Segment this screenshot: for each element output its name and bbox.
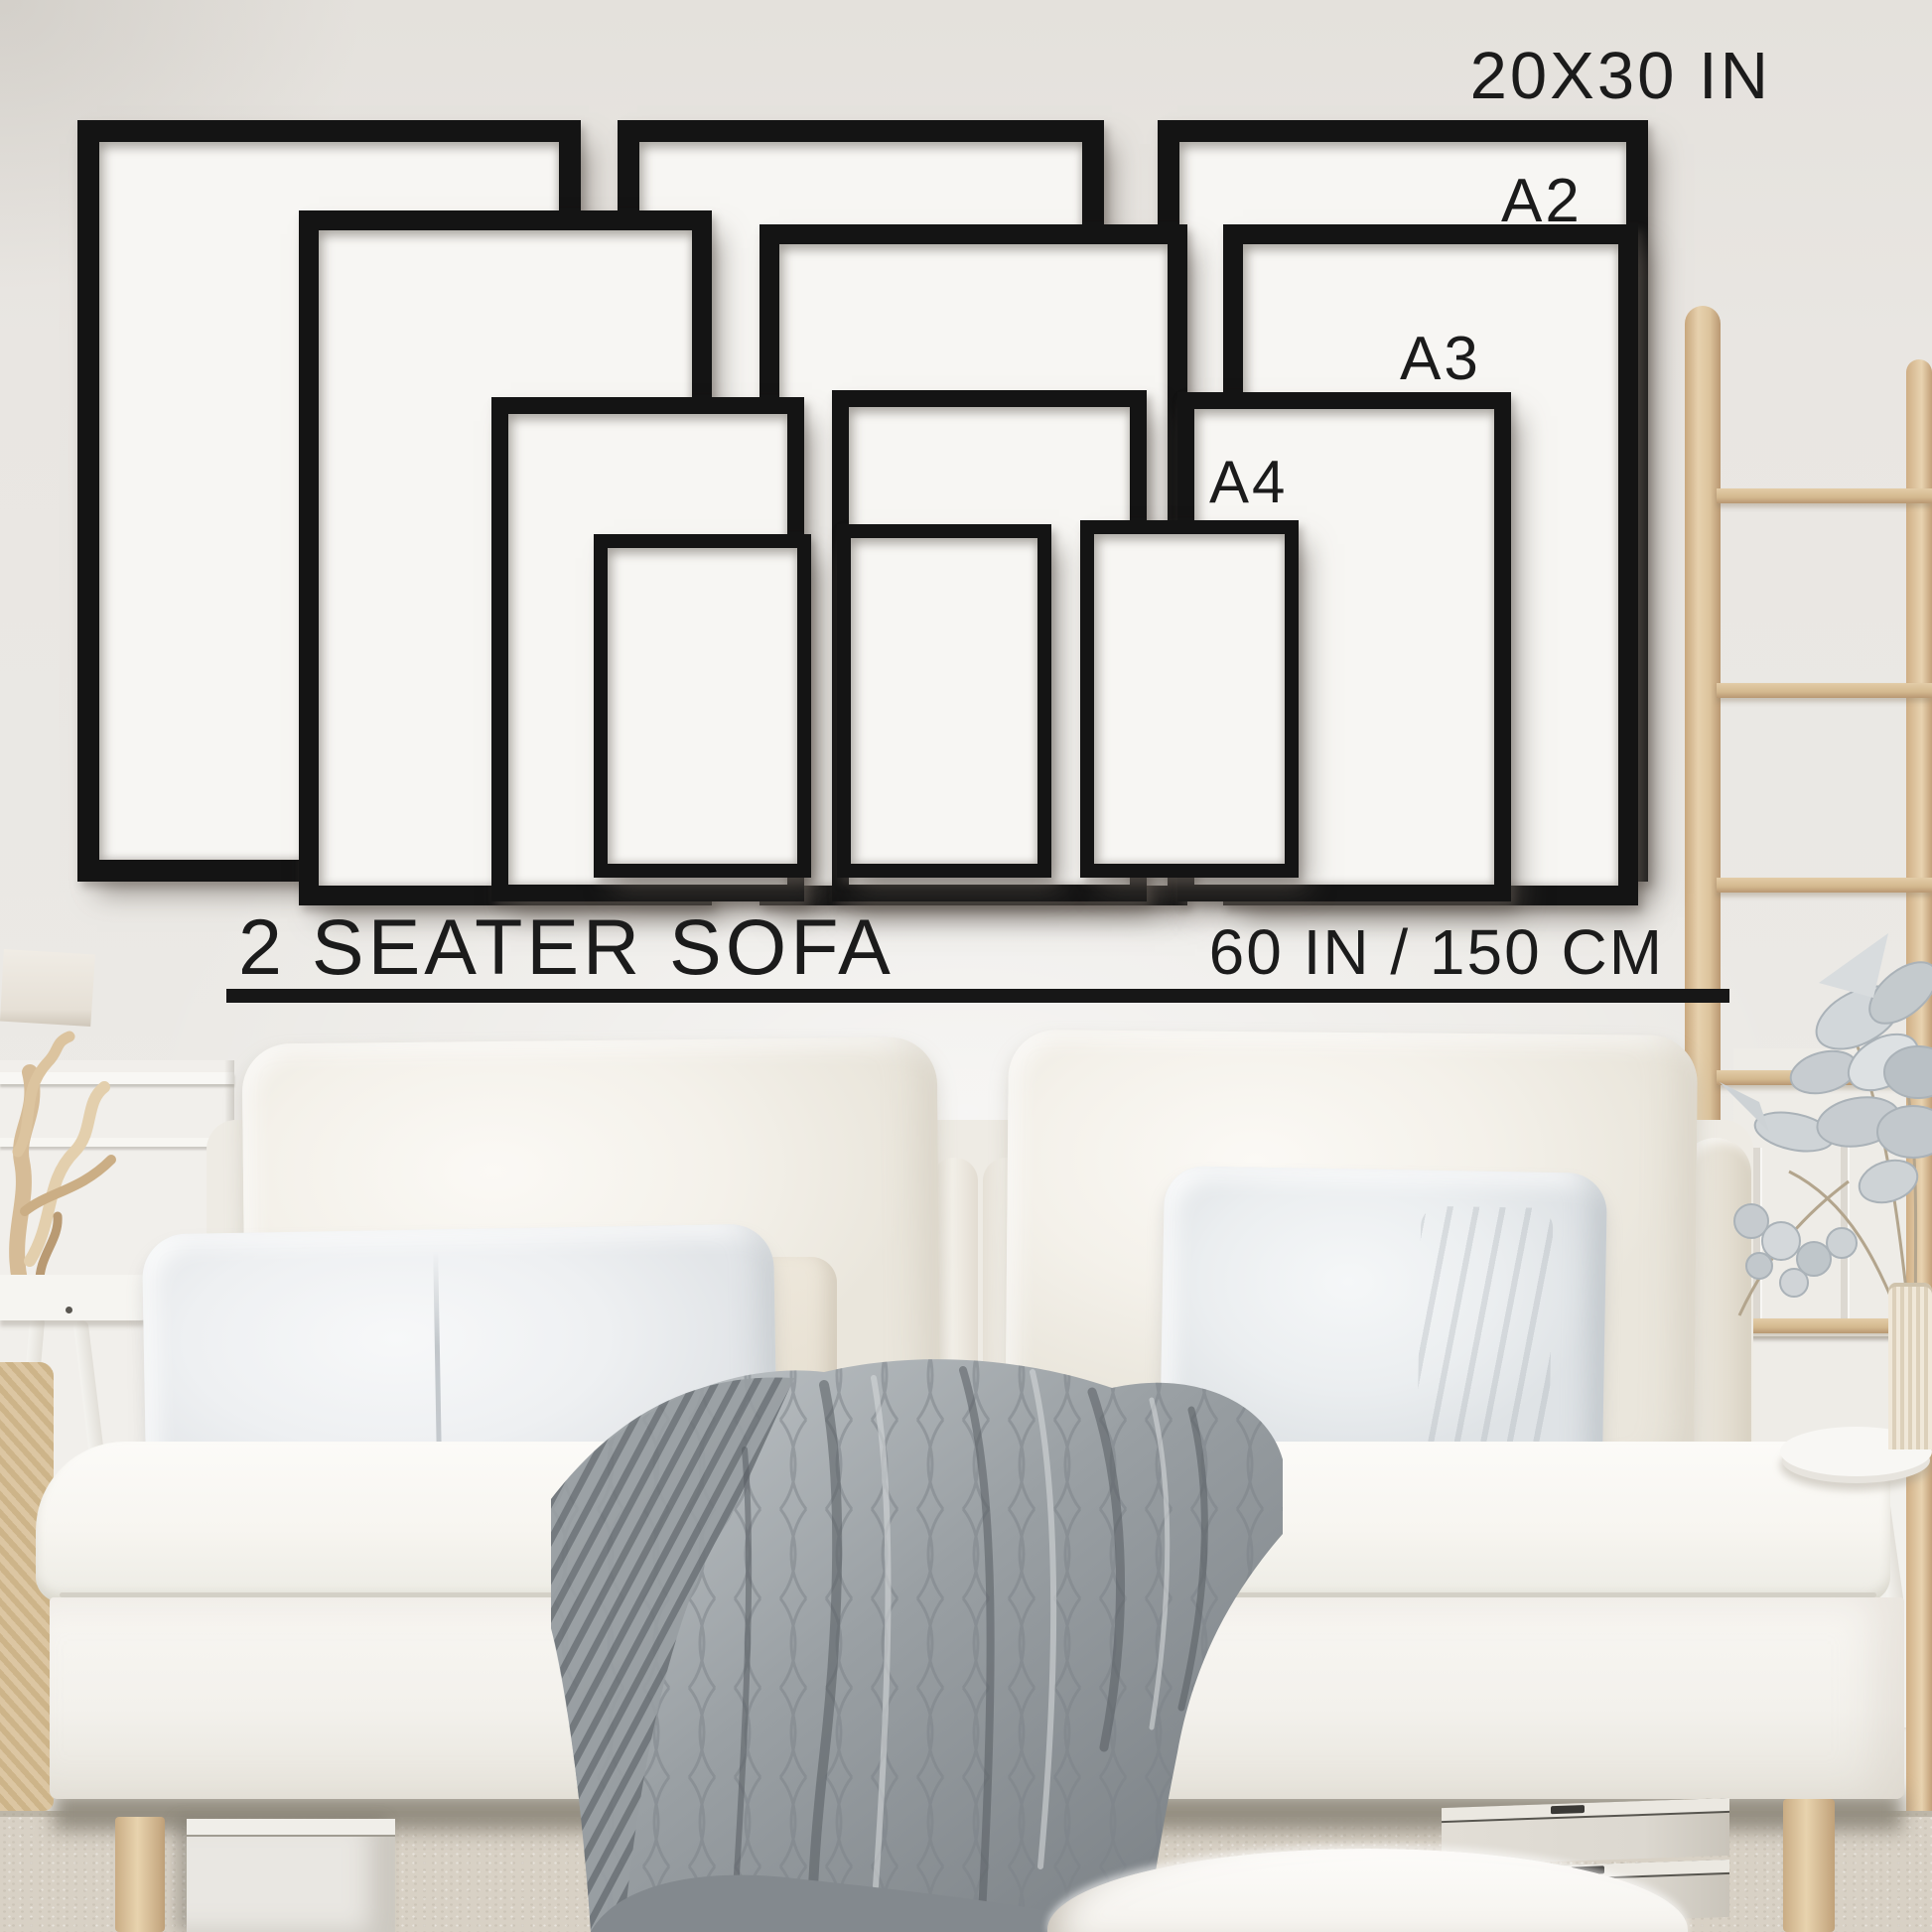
driftwood-sculpture (0, 1033, 129, 1291)
size-guide-image: 20X30 IN A2 A3 A4 2 SEATER SOFA 60 IN / … (0, 0, 1932, 1932)
picture-frame-a4 (1080, 520, 1299, 878)
frame-blank-print (608, 548, 797, 864)
knit-throw-blanket (496, 1330, 1311, 1932)
frame-blank-print (851, 538, 1037, 864)
box-handle-slot (1551, 1805, 1585, 1814)
sofa-label: 2 SEATER SOFA (238, 901, 895, 993)
sofa-width-label: 60 IN / 150 CM (1197, 915, 1664, 989)
picture-frame-a4 (594, 534, 811, 878)
sofa-width-underline (226, 989, 1729, 1003)
a4-size-label: A4 (1209, 448, 1288, 516)
sofa-wood-leg-left (115, 1817, 165, 1932)
frame-blank-print (1094, 534, 1285, 864)
side-table-left-top (0, 1275, 163, 1320)
ribbed-vase (1888, 1283, 1932, 1449)
a2-size-label: A2 (1501, 166, 1583, 236)
a3-size-label: A3 (1400, 324, 1481, 394)
largest-frame-size-label: 20X30 IN (1467, 38, 1771, 114)
storage-box (187, 1819, 395, 1932)
sofa-wood-leg-right (1783, 1799, 1835, 1932)
table-screw (66, 1307, 72, 1313)
picture-frame-a4 (837, 524, 1051, 878)
lamp-shade (0, 949, 95, 1027)
